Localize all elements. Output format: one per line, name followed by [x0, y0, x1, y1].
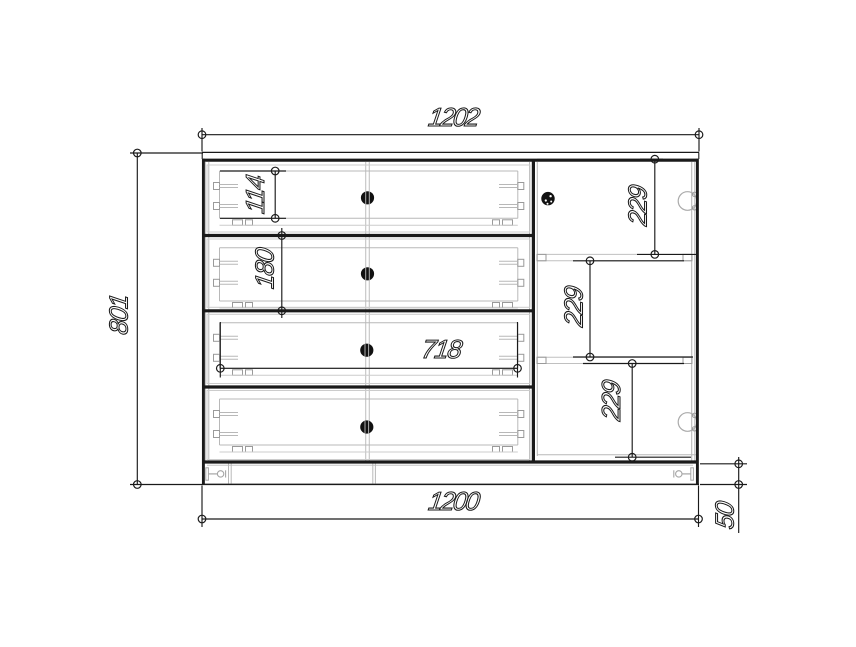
svg-text:229: 229 — [623, 183, 653, 228]
svg-text:1202: 1202 — [427, 102, 483, 132]
svg-text:114: 114 — [240, 173, 270, 215]
svg-text:718: 718 — [420, 334, 465, 364]
svg-text:1200: 1200 — [427, 486, 483, 516]
svg-text:180: 180 — [250, 245, 280, 290]
svg-text:229: 229 — [559, 284, 589, 329]
svg-text:229: 229 — [596, 378, 626, 423]
svg-text:801: 801 — [104, 293, 134, 336]
